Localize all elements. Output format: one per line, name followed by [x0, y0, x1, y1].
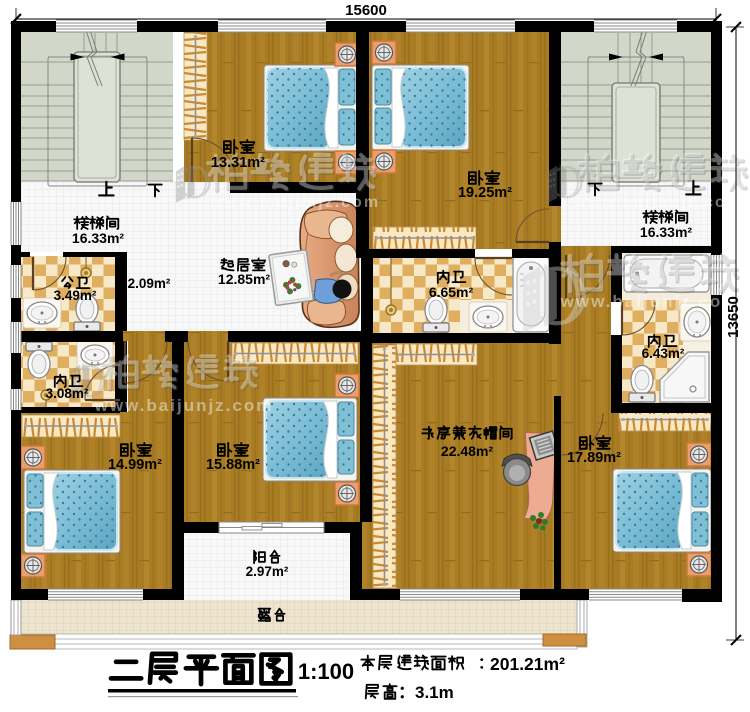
- svg-text:2.97m²: 2.97m²: [246, 564, 289, 579]
- svg-text:www.baijunjz.com: www.baijunjz.com: [572, 194, 743, 211]
- svg-text:15.88m²: 15.88m²: [206, 457, 260, 473]
- svg-text:15600: 15600: [345, 2, 387, 19]
- svg-text:www.baijunjz.com: www.baijunjz.com: [94, 396, 274, 415]
- svg-text:12.85m²: 12.85m²: [218, 271, 270, 287]
- svg-text:2.09m²: 2.09m²: [128, 276, 171, 291]
- svg-text:201.21m²: 201.21m²: [490, 654, 565, 674]
- svg-text:www.baijunjz.com: www.baijunjz.com: [560, 292, 740, 311]
- svg-text:16.33m²: 16.33m²: [72, 230, 124, 246]
- svg-text:6.43m²: 6.43m²: [642, 346, 685, 361]
- svg-text:www.baijunjz.com: www.baijunjz.com: [209, 194, 380, 211]
- svg-text:17.89m²: 17.89m²: [567, 450, 621, 466]
- svg-text:1:100: 1:100: [298, 659, 354, 684]
- svg-text:6.65m²: 6.65m²: [429, 284, 474, 300]
- svg-text:14.99m²: 14.99m²: [108, 457, 162, 473]
- svg-text:3.49m²: 3.49m²: [54, 288, 97, 303]
- svg-text:13.31m²: 13.31m²: [211, 155, 265, 171]
- svg-text:3.08m²: 3.08m²: [46, 386, 89, 401]
- svg-text:16.33m²: 16.33m²: [640, 224, 692, 240]
- svg-text:22.48m²: 22.48m²: [441, 443, 493, 459]
- svg-text:：3.1m: ：3.1m: [398, 683, 454, 702]
- svg-text:19.25m²: 19.25m²: [458, 185, 512, 201]
- svg-text:13650: 13650: [725, 296, 742, 338]
